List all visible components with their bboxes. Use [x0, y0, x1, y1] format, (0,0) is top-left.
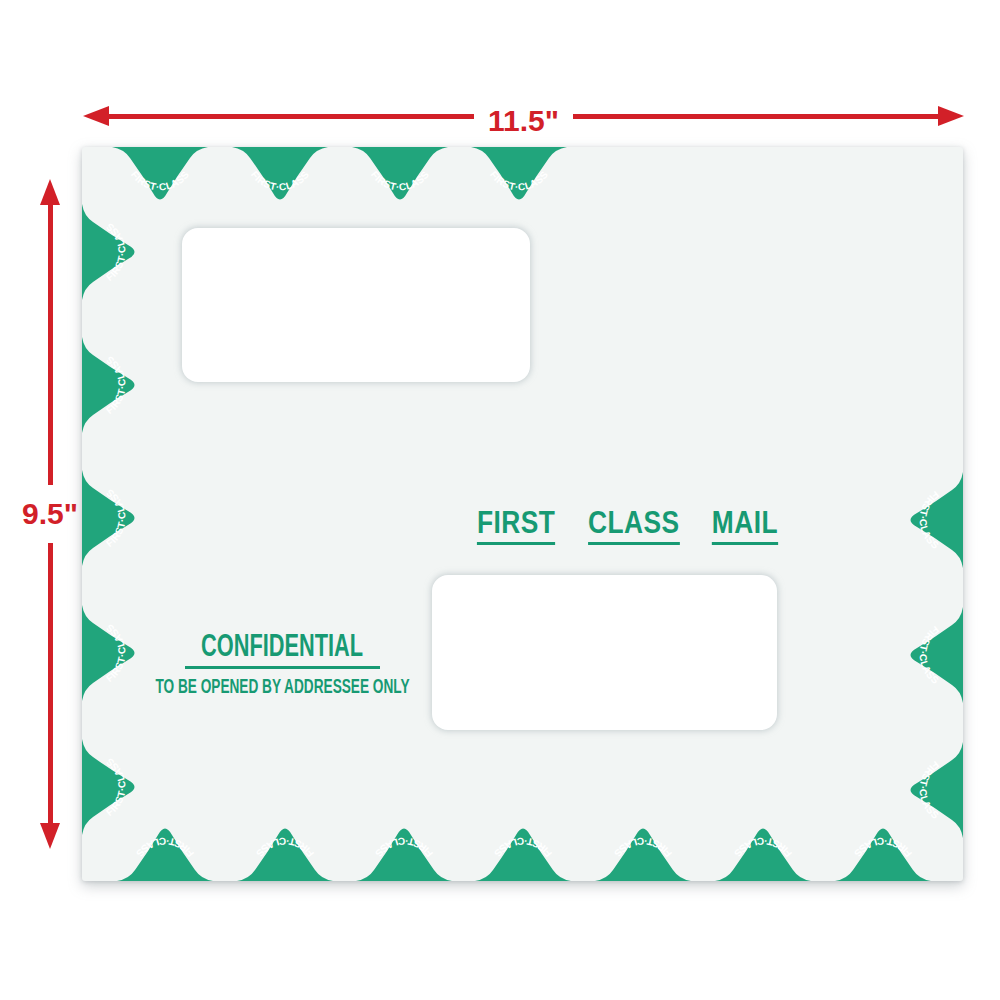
first-class-mail-stamp: FIRST CLASS MAIL [470, 507, 783, 545]
arrowhead-left-icon [83, 106, 109, 126]
first-class-mail-word: FIRST [477, 507, 555, 545]
first-class-stamp-icon: FIRST·CLASS [82, 202, 148, 302]
arrowhead-right-icon [938, 106, 964, 126]
arrowhead-up-icon [40, 179, 60, 205]
first-class-stamp-icon: FIRST·CLASS [897, 605, 963, 705]
first-class-stamp-icon: FIRST·CLASS [469, 147, 569, 213]
height-dimension-arrow: 9.5" [22, 179, 78, 849]
first-class-stamp-icon: FIRST·CLASS [593, 815, 693, 881]
dimension-line [573, 114, 938, 119]
first-class-mail-word: CLASS [588, 507, 679, 545]
first-class-stamp-icon: FIRST·CLASS [235, 815, 335, 881]
first-class-stamp-icon: FIRST·CLASS [82, 603, 148, 703]
confidential-subtitle: TO BE OPENED BY ADDRESSEE ONLY [155, 675, 409, 696]
height-dimension-label: 9.5" [22, 497, 78, 531]
envelope: FIRST CLASS MAIL CONFIDENTIAL TO BE OPEN… [82, 147, 963, 881]
arrowhead-down-icon [40, 823, 60, 849]
width-dimension-arrow: 11.5" [83, 98, 964, 134]
first-class-stamp-icon: FIRST·CLASS [82, 737, 148, 837]
first-class-stamp-icon: FIRST·CLASS [473, 815, 573, 881]
first-class-stamp-icon: FIRST·CLASS [82, 335, 148, 435]
dimension-line [48, 543, 53, 823]
first-class-stamp-icon: FIRST·CLASS [82, 468, 148, 568]
confidential-stamp: CONFIDENTIAL TO BE OPENED BY ADDRESSEE O… [157, 629, 407, 696]
confidential-title: CONFIDENTIAL [201, 629, 363, 661]
first-class-mail-word: MAIL [711, 507, 777, 545]
first-class-stamp-icon: FIRST·CLASS [350, 147, 450, 213]
first-class-stamp-icon: FIRST·CLASS [354, 815, 454, 881]
dimension-line [48, 205, 53, 485]
product-image: 11.5" 9.5" FIRST CLASS MAIL CONFIDENTIAL… [0, 0, 1000, 1000]
address-window-top [182, 228, 530, 382]
first-class-stamp-icon: FIRST·CLASS [897, 470, 963, 570]
dimension-line [109, 114, 474, 119]
first-class-stamp-icon: FIRST·CLASS [230, 147, 330, 213]
first-class-stamp-icon: FIRST·CLASS [713, 815, 813, 881]
width-dimension-label: 11.5" [488, 104, 559, 138]
confidential-underline [185, 666, 380, 669]
first-class-stamp-icon: FIRST·CLASS [897, 740, 963, 840]
address-window-bottom [432, 575, 777, 730]
